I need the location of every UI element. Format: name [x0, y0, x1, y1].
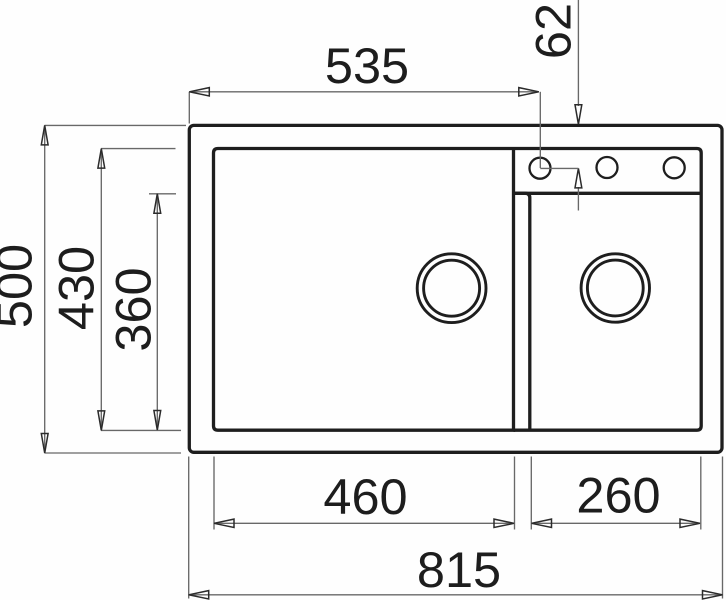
svg-text:500: 500 — [0, 244, 43, 328]
svg-text:62: 62 — [525, 3, 582, 59]
svg-text:535: 535 — [325, 37, 409, 94]
svg-text:460: 460 — [323, 468, 407, 525]
svg-text:815: 815 — [417, 541, 501, 598]
svg-text:260: 260 — [576, 467, 660, 524]
svg-text:430: 430 — [48, 246, 105, 330]
svg-text:360: 360 — [105, 267, 162, 351]
